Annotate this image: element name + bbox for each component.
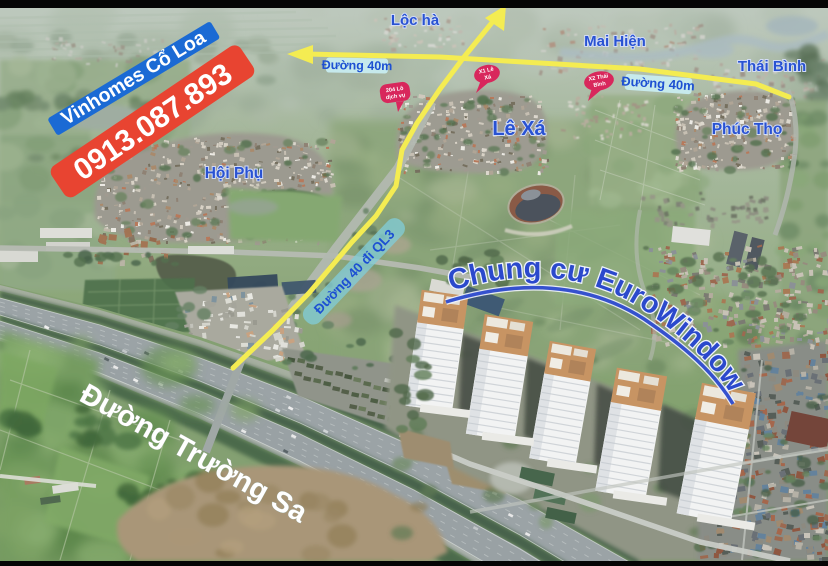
svg-text:Đường 40m: Đường 40m (322, 58, 393, 73)
svg-text:Hội Phụ: Hội Phụ (205, 165, 264, 182)
svg-text:Thái Bình: Thái Bình (738, 58, 806, 75)
svg-text:Mai Hiện: Mai Hiện (584, 33, 646, 50)
svg-text:Lê Xá: Lê Xá (492, 118, 546, 140)
svg-text:Phúc Thọ: Phúc Thọ (712, 121, 783, 138)
svg-text:Lộc hà: Lộc hà (391, 12, 440, 29)
